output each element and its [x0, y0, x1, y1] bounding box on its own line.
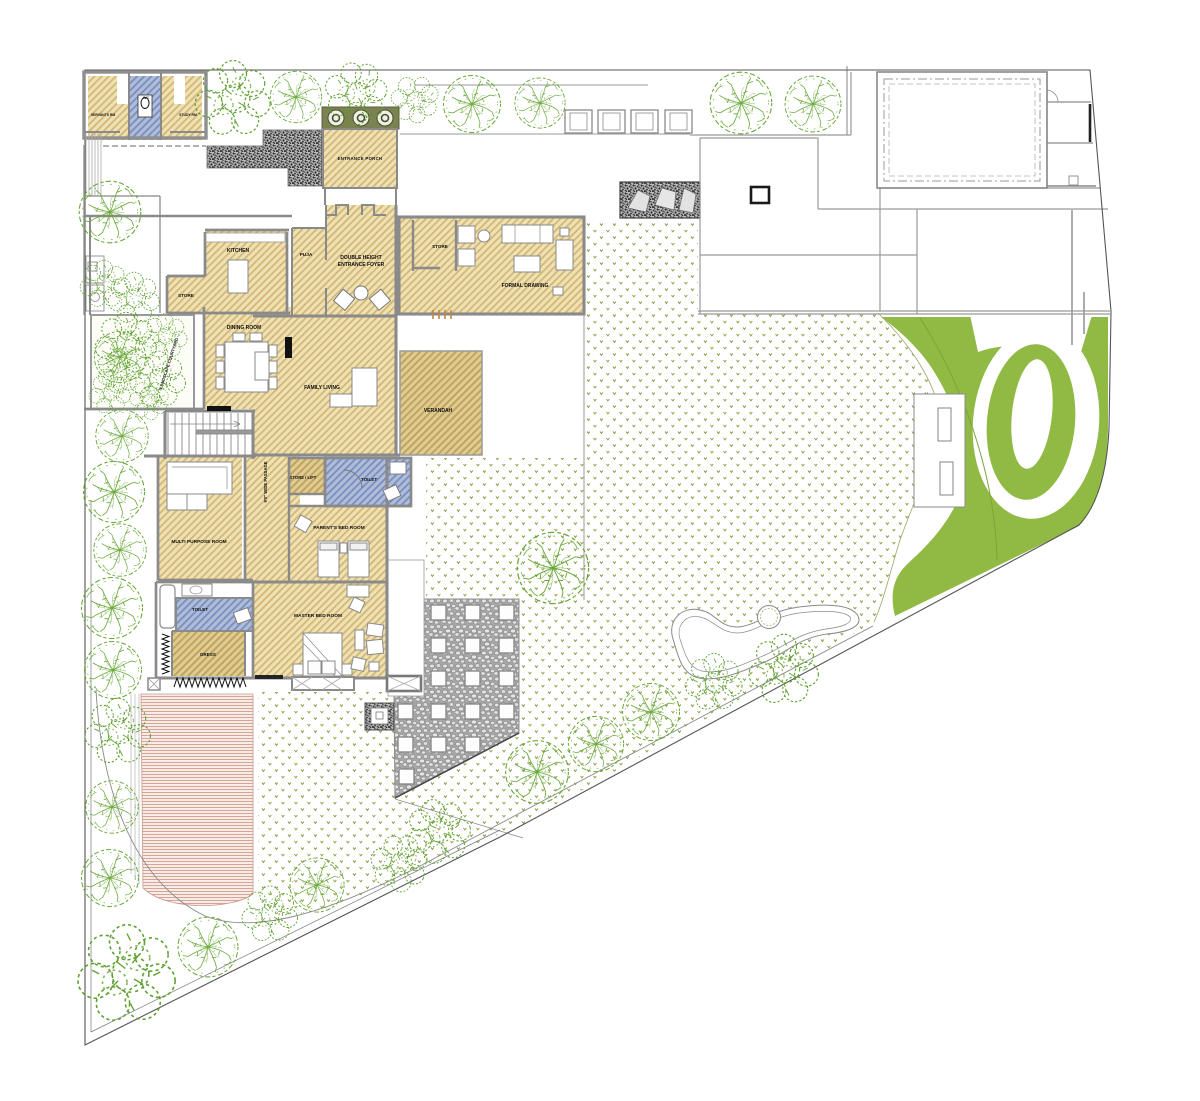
svg-text:WC: WC	[143, 96, 149, 100]
svg-text:MASTER BED ROOM: MASTER BED ROOM	[294, 613, 342, 619]
svg-text:ENTRANCE PORCH: ENTRANCE PORCH	[338, 156, 383, 161]
svg-text:DINING ROOM: DINING ROOM	[227, 325, 261, 331]
svg-text:MULTI PURPOSE ROOM: MULTI PURPOSE ROOM	[171, 539, 226, 545]
svg-text:STORE: STORE	[432, 244, 448, 249]
svg-text:PARENT'S BED ROOM: PARENT'S BED ROOM	[313, 525, 364, 531]
svg-text:KITCHEN: KITCHEN	[227, 248, 250, 254]
svg-text:TOILET: TOILET	[192, 607, 208, 612]
svg-text:ENTRANCE FOYER: ENTRANCE FOYER	[338, 262, 385, 268]
svg-text:STUDY RM: STUDY RM	[179, 113, 197, 117]
svg-text:DRESS: DRESS	[200, 652, 216, 657]
svg-text:STORE / LIFT: STORE / LIFT	[290, 475, 317, 480]
svg-text:FAMILY LIVING: FAMILY LIVING	[304, 385, 340, 391]
svg-text:TOILET: TOILET	[361, 477, 377, 482]
svg-text:SERVANTS RM: SERVANTS RM	[91, 113, 116, 117]
svg-text:FORMAL DRAWING: FORMAL DRAWING	[502, 283, 549, 289]
svg-text:STORE: STORE	[178, 293, 194, 298]
svg-text:PUJA: PUJA	[300, 252, 313, 258]
svg-text:VERANDAH: VERANDAH	[424, 408, 453, 414]
svg-text:DOUBLE HEIGHT: DOUBLE HEIGHT	[340, 255, 381, 261]
svg-text:9'0" WIDE PASSAGE: 9'0" WIDE PASSAGE	[263, 461, 268, 502]
